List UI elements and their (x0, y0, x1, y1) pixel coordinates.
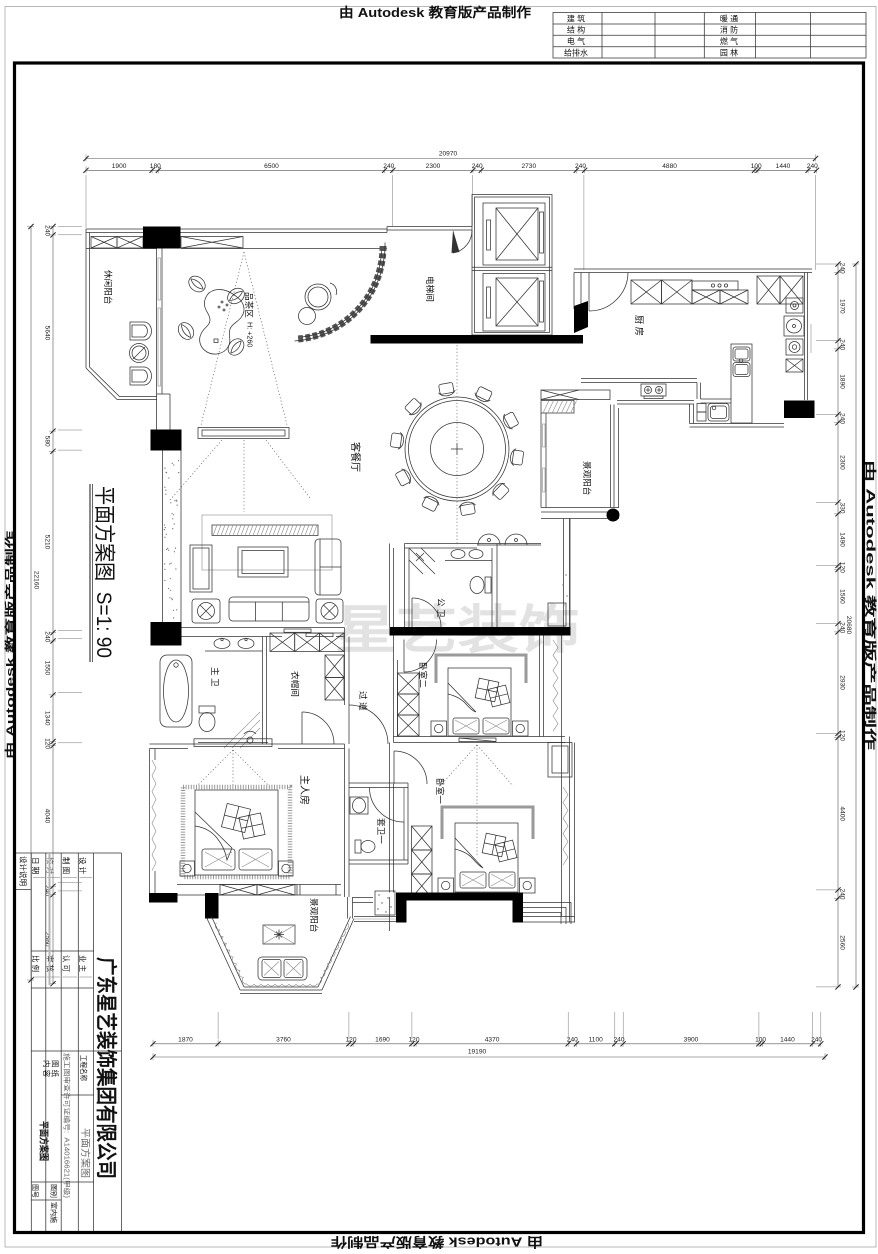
svg-text:1490: 1490 (839, 532, 846, 547)
svg-text:图 纸: 图 纸 (51, 1060, 61, 1078)
svg-text:6500: 6500 (264, 163, 279, 170)
svg-text:4400: 4400 (839, 806, 846, 821)
svg-text:4880: 4880 (662, 163, 677, 170)
svg-text:240: 240 (839, 413, 846, 424)
svg-text:20970: 20970 (439, 151, 458, 158)
svg-text:结 构: 结 构 (567, 25, 585, 35)
svg-text:由 Autodesk 教育版产品制作: 由 Autodesk 教育版产品制作 (331, 1235, 543, 1250)
svg-text:2930: 2930 (839, 675, 846, 690)
svg-text:20680: 20680 (845, 616, 852, 635)
svg-text:120: 120 (44, 738, 51, 749)
svg-text:套卫一: 套卫一 (376, 818, 387, 844)
svg-text:240: 240 (44, 631, 51, 642)
svg-text:景观阳台: 景观阳台 (582, 461, 593, 495)
svg-text:240: 240 (472, 163, 483, 170)
svg-text:图别: 图别 (50, 1184, 59, 1198)
svg-text:1440: 1440 (776, 163, 791, 170)
svg-text:1970: 1970 (839, 299, 846, 314)
svg-text:消 防: 消 防 (720, 25, 738, 35)
svg-text:4370: 4370 (485, 1036, 500, 1043)
svg-text:园 林: 园 林 (720, 47, 738, 57)
svg-text:2730: 2730 (521, 163, 536, 170)
svg-text:客餐厅: 客餐厅 (349, 442, 362, 472)
svg-text:内 容: 内 容 (42, 1060, 52, 1078)
svg-text:主 卫: 主 卫 (210, 667, 221, 687)
svg-text:广东星艺装饰集团有限公司: 广东星艺装饰集团有限公司 (94, 957, 118, 1179)
svg-text:1440: 1440 (780, 1036, 795, 1043)
svg-text:电梯间: 电梯间 (425, 276, 436, 302)
svg-text:卧室二: 卧室二 (418, 662, 429, 688)
svg-text:工程名称: 工程名称 (79, 1055, 89, 1081)
svg-text:制 图: 制 图 (62, 857, 72, 874)
svg-text:1560: 1560 (839, 589, 846, 604)
svg-text:1550: 1550 (44, 661, 51, 676)
svg-text:图号: 图号 (31, 1184, 39, 1198)
svg-text:设计说明: 设计说明 (19, 856, 29, 886)
svg-text:室内施: 室内施 (50, 1202, 59, 1223)
svg-text:衣帽间: 衣帽间 (290, 671, 301, 697)
svg-text:240: 240 (807, 163, 818, 170)
svg-text:平面方案图: 平面方案图 (38, 1121, 50, 1161)
svg-text:4040: 4040 (44, 809, 51, 824)
svg-text:240: 240 (575, 163, 586, 170)
svg-text:120: 120 (839, 730, 846, 741)
svg-text:1870: 1870 (178, 1036, 193, 1043)
svg-text:公 卫: 公 卫 (436, 598, 446, 618)
svg-text:1900: 1900 (112, 163, 127, 170)
svg-text:240: 240 (839, 339, 846, 350)
svg-text:品茶区: 品茶区 (244, 292, 255, 318)
svg-text:22160: 22160 (33, 571, 40, 590)
svg-text:100: 100 (751, 163, 762, 170)
svg-text:暖 通: 暖 通 (720, 13, 738, 23)
svg-text:2300: 2300 (839, 455, 846, 470)
svg-text:建 筑: 建 筑 (567, 13, 585, 23)
svg-text:1890: 1890 (839, 374, 846, 389)
svg-text:主人房: 主人房 (298, 775, 311, 805)
svg-text:120: 120 (345, 1036, 356, 1043)
svg-text:240: 240 (383, 163, 394, 170)
svg-text:比 例: 比 例 (31, 955, 41, 972)
svg-text:业 主: 业 主 (78, 955, 88, 973)
svg-text:由 Autodesk 教育版产品制作: 由 Autodesk 教育版产品制作 (864, 460, 878, 751)
svg-text:240: 240 (839, 889, 846, 900)
svg-text:给排水: 给排水 (564, 47, 588, 57)
svg-text:认 可: 认 可 (62, 955, 72, 973)
svg-text:180: 180 (150, 163, 161, 170)
svg-text:5210: 5210 (44, 535, 51, 550)
svg-text:设 计: 设 计 (78, 857, 88, 875)
svg-text:120: 120 (839, 562, 846, 573)
svg-text:2560: 2560 (839, 935, 846, 950)
svg-text:H: +260: H: +260 (246, 322, 255, 347)
svg-text:5640: 5640 (44, 326, 51, 341)
svg-text:休闲阳台: 休闲阳台 (103, 270, 114, 304)
svg-text:3900: 3900 (684, 1036, 699, 1043)
svg-text:3760: 3760 (276, 1036, 291, 1043)
svg-text:1100: 1100 (589, 1036, 604, 1043)
svg-text:平面方案图: 平面方案图 (79, 1128, 91, 1178)
svg-text:景观阳台: 景观阳台 (309, 898, 320, 932)
svg-text:由 Autodesk 教育版产品制作: 由 Autodesk 教育版产品制作 (339, 5, 531, 20)
svg-text:580: 580 (44, 436, 51, 447)
svg-text:19190: 19190 (468, 1049, 487, 1056)
svg-text:日 期: 日 期 (31, 857, 40, 874)
svg-text:330: 330 (839, 502, 846, 513)
svg-text:240: 240 (567, 1036, 578, 1043)
svg-text:100: 100 (755, 1036, 766, 1043)
svg-text:2300: 2300 (426, 163, 441, 170)
svg-text:燃 气: 燃 气 (720, 36, 738, 46)
svg-text:1690: 1690 (375, 1036, 390, 1043)
svg-text:240: 240 (44, 225, 51, 236)
svg-text:平面方案图 S=1: 90: 平面方案图 S=1: 90 (92, 486, 116, 658)
svg-text:电 气: 电 气 (567, 36, 585, 46)
svg-text:1340: 1340 (44, 711, 51, 726)
svg-text:240: 240 (839, 622, 846, 633)
svg-text:240: 240 (839, 263, 846, 274)
svg-text:卧室一: 卧室一 (435, 778, 446, 804)
svg-text:120: 120 (408, 1036, 419, 1043)
svg-text:厨 房: 厨 房 (634, 315, 645, 336)
svg-text:施工图审查许可证编号: A14016621(甲级): 施工图审查许可证编号: A14016621(甲级) (63, 1053, 72, 1198)
